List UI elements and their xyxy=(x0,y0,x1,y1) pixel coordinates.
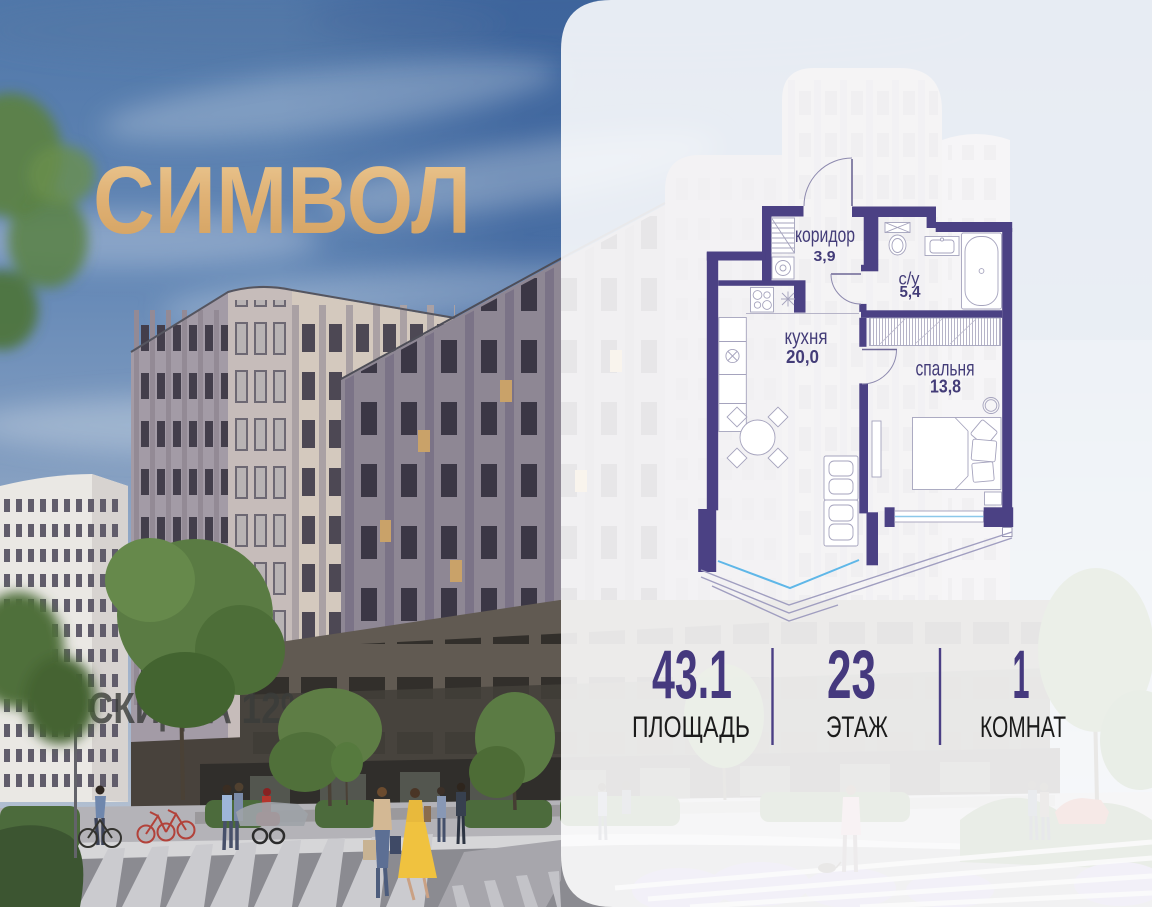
svg-text:коридор: коридор xyxy=(795,224,855,247)
svg-text:ПЛОЩАДЬ: ПЛОЩАДЬ xyxy=(632,711,750,744)
svg-text:1: 1 xyxy=(1013,636,1030,713)
svg-text:3,9: 3,9 xyxy=(814,248,836,265)
svg-text:СИМВОЛ: СИМВОЛ xyxy=(93,147,471,254)
svg-text:КОМНАТ: КОМНАТ xyxy=(980,711,1066,744)
svg-text:43.1: 43.1 xyxy=(652,636,732,713)
svg-text:кухня: кухня xyxy=(785,326,828,349)
svg-text:23: 23 xyxy=(827,636,876,713)
svg-text:ЭТАЖ: ЭТАЖ xyxy=(826,711,888,744)
svg-text:20,0: 20,0 xyxy=(786,347,819,367)
svg-text:13,8: 13,8 xyxy=(930,377,961,397)
svg-text:5,4: 5,4 xyxy=(900,284,921,301)
